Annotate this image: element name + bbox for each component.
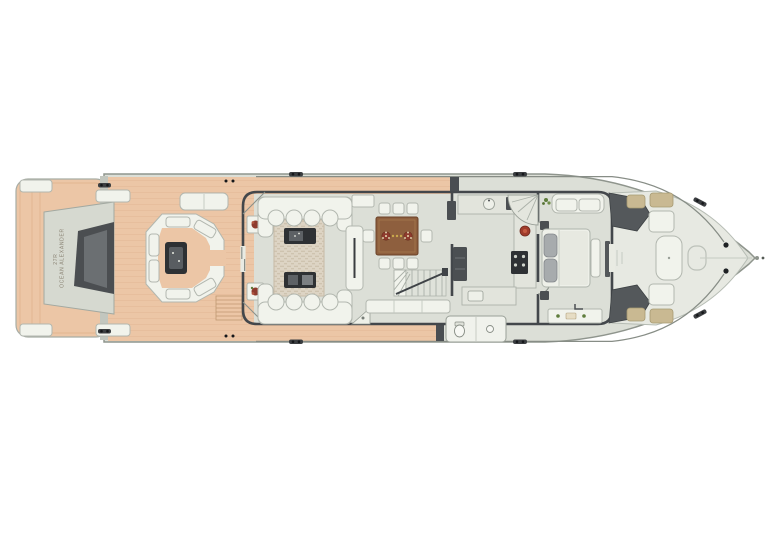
galley-sink-2: [468, 291, 483, 301]
cleat: [693, 309, 707, 320]
table-medallion: [404, 232, 412, 241]
wall-console: [352, 195, 374, 207]
side-deck-starboard: [250, 325, 436, 341]
cleat: [513, 172, 527, 177]
credenza: [366, 300, 450, 313]
seat-cushion: [650, 193, 673, 207]
dining-table: [376, 217, 418, 255]
cooktop: [511, 251, 528, 274]
seat-cushion: [627, 308, 645, 321]
head-sink: [487, 326, 494, 333]
aft-cocktail-table: [165, 242, 187, 274]
foot-bench: [591, 239, 600, 277]
boarding-step: [20, 324, 52, 336]
cleat: [289, 340, 303, 345]
boarding-step: [20, 180, 52, 192]
aft-stairs: [216, 296, 242, 320]
side-gate: [450, 177, 459, 192]
page: 27R OCEAN ALEXANDER: [0, 0, 768, 543]
pillow: [544, 234, 557, 257]
deck-locker: [649, 211, 674, 232]
sunpad: [180, 193, 228, 210]
cleat: [289, 172, 303, 177]
cleat: [693, 197, 707, 208]
coffee-table: [284, 272, 316, 288]
coffee-table: [284, 228, 316, 244]
yacht-deck-plan: 27R OCEAN ALEXANDER: [0, 0, 768, 543]
table-medallion: [382, 232, 390, 241]
pillow: [544, 259, 557, 282]
wall-cabinet: [447, 201, 456, 220]
side-bench: [96, 190, 130, 202]
lower-deck-stairs: [394, 268, 448, 296]
cleat: [513, 340, 527, 345]
lounge-pad: [656, 236, 682, 280]
salon-aft-door: [240, 246, 245, 272]
day-head: [446, 316, 506, 342]
seat-cushion: [627, 195, 645, 208]
master-sofa: [552, 194, 604, 213]
cleat: [98, 329, 111, 334]
side-gate: [436, 325, 444, 341]
sideboard: [346, 226, 363, 290]
seat-cushion: [650, 309, 673, 323]
deck-locker: [649, 284, 674, 305]
nightstand: [540, 291, 549, 300]
toilet: [455, 322, 465, 337]
refrigerator: [453, 247, 467, 281]
cleat: [98, 183, 111, 188]
